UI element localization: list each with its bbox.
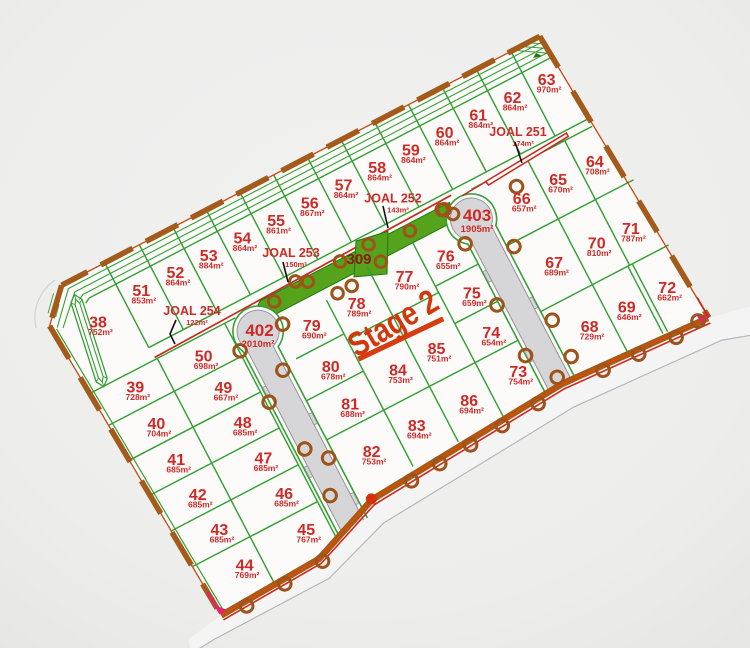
svg-text:754m²: 754m²: [509, 377, 534, 387]
svg-text:685m²: 685m²: [166, 464, 191, 474]
svg-text:789m²: 789m²: [347, 309, 372, 319]
svg-text:2010m²: 2010m²: [242, 339, 275, 350]
svg-text:JOAL 253: JOAL 253: [262, 246, 319, 260]
svg-text:690m²: 690m²: [302, 331, 327, 341]
svg-text:704m²: 704m²: [147, 429, 172, 439]
svg-text:694m²: 694m²: [407, 431, 432, 441]
svg-text:853m²: 853m²: [132, 296, 157, 306]
svg-text:753m²: 753m²: [362, 456, 387, 466]
svg-text:810m²: 810m²: [587, 248, 612, 258]
svg-text:752m²: 752m²: [88, 327, 113, 337]
svg-text:659m²: 659m²: [462, 298, 487, 308]
svg-text:867m²: 867m²: [300, 208, 325, 218]
svg-text:1905m²: 1905m²: [461, 224, 494, 235]
svg-text:864m²: 864m²: [401, 155, 426, 165]
svg-text:708m²: 708m²: [585, 166, 610, 176]
svg-text:JOAL 252: JOAL 252: [364, 192, 421, 206]
svg-text:728m²: 728m²: [126, 392, 151, 402]
svg-text:657m²: 657m²: [512, 203, 537, 213]
svg-text:864m²: 864m²: [233, 243, 258, 253]
svg-text:694m²: 694m²: [459, 406, 484, 416]
svg-text:403: 403: [463, 206, 491, 225]
svg-text:689m²: 689m²: [544, 268, 569, 278]
svg-text:769m²: 769m²: [235, 570, 260, 580]
svg-text:667m²: 667m²: [214, 393, 239, 403]
svg-text:753m²: 753m²: [388, 375, 413, 385]
svg-text:143m²: 143m²: [387, 206, 409, 215]
svg-text:685m²: 685m²: [210, 534, 235, 544]
svg-text:790m²: 790m²: [395, 281, 420, 291]
svg-text:654m²: 654m²: [482, 338, 507, 348]
svg-text:884m²: 884m²: [199, 260, 224, 270]
svg-text:698m²: 698m²: [194, 361, 219, 371]
svg-text:685m²: 685m²: [233, 428, 258, 438]
svg-text:662m²: 662m²: [657, 292, 682, 302]
svg-text:861m²: 861m²: [266, 225, 291, 235]
svg-text:655m²: 655m²: [436, 261, 461, 271]
svg-text:688m²: 688m²: [340, 409, 365, 419]
svg-text:150m²: 150m²: [285, 260, 307, 269]
svg-text:685m²: 685m²: [274, 499, 299, 509]
svg-text:678m²: 678m²: [321, 372, 346, 382]
svg-text:JOAL 251: JOAL 251: [489, 125, 546, 139]
svg-text:767m²: 767m²: [296, 534, 321, 544]
svg-text:685m²: 685m²: [254, 463, 279, 473]
svg-text:787m²: 787m²: [621, 233, 646, 243]
svg-text:670m²: 670m²: [548, 185, 573, 195]
svg-text:864m²: 864m²: [334, 190, 359, 200]
svg-text:122m²: 122m²: [186, 318, 208, 327]
svg-text:309: 309: [346, 251, 371, 268]
svg-text:864m²: 864m²: [503, 102, 528, 112]
svg-text:402: 402: [245, 321, 273, 340]
svg-text:JOAL 254: JOAL 254: [163, 304, 220, 318]
svg-text:646m²: 646m²: [617, 312, 642, 322]
svg-text:864m²: 864m²: [435, 138, 460, 148]
svg-text:864m²: 864m²: [367, 173, 392, 183]
svg-text:970m²: 970m²: [537, 85, 562, 95]
svg-text:864m²: 864m²: [166, 278, 191, 288]
svg-text:751m²: 751m²: [427, 354, 452, 364]
svg-text:729m²: 729m²: [580, 332, 605, 342]
svg-text:685m²: 685m²: [188, 499, 213, 509]
